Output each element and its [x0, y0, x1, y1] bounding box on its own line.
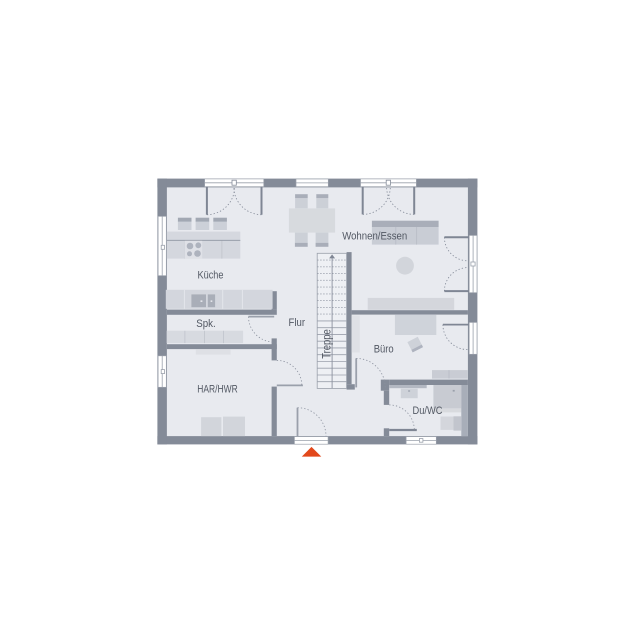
svg-text:Büro: Büro [374, 343, 394, 355]
svg-text:Treppe: Treppe [321, 329, 333, 359]
svg-text:Küche: Küche [198, 269, 224, 281]
svg-text:Spk.: Spk. [196, 318, 216, 330]
svg-text:Wohnen/Essen: Wohnen/Essen [342, 230, 407, 242]
svg-text:HAR/HWR: HAR/HWR [197, 384, 237, 396]
svg-text:Du/WC: Du/WC [413, 405, 443, 417]
svg-text:Flur: Flur [289, 317, 306, 329]
